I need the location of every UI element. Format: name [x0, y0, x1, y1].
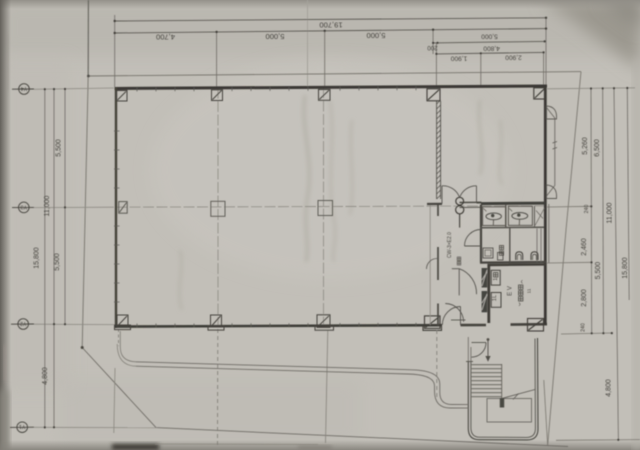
svg-text:5,260: 5,260	[582, 137, 589, 155]
svg-text:11,000: 11,000	[607, 202, 614, 223]
svg-text:2,460: 2,460	[581, 238, 588, 256]
svg-text:Y4: Y4	[21, 85, 28, 91]
svg-text:Y1: Y1	[19, 423, 26, 429]
svg-text:4,800: 4,800	[42, 367, 49, 385]
svg-text:4,800: 4,800	[606, 379, 613, 397]
svg-text:15,800: 15,800	[34, 247, 41, 269]
svg-text:5,000: 5,000	[265, 32, 284, 41]
svg-text:19,700: 19,700	[319, 21, 342, 30]
svg-text:5,500: 5,500	[56, 139, 63, 157]
svg-text:2,800: 2,800	[581, 289, 588, 307]
svg-text:4,700: 4,700	[156, 33, 175, 42]
svg-text:CW-3×E2.0: CW-3×E2.0	[447, 232, 453, 258]
svg-text:1,900: 1,900	[450, 55, 467, 62]
svg-text:11: 11	[527, 288, 532, 293]
svg-text:Y3: Y3	[21, 203, 28, 209]
svg-text:11,000: 11,000	[44, 195, 51, 216]
svg-text:240: 240	[584, 205, 590, 214]
svg-text:4,800: 4,800	[483, 44, 500, 51]
svg-text:5,500: 5,500	[595, 262, 602, 280]
svg-text:1L: 1L	[492, 295, 498, 301]
svg-text:6,500: 6,500	[594, 139, 601, 157]
svg-text:E V: E V	[508, 286, 514, 296]
svg-text:240: 240	[581, 323, 587, 332]
svg-text:1: 1	[493, 278, 499, 281]
svg-text:5,000: 5,000	[366, 31, 385, 40]
svg-text:15,800: 15,800	[622, 257, 629, 279]
svg-text:2,900: 2,900	[505, 54, 522, 61]
svg-text:Y2: Y2	[20, 320, 27, 326]
svg-text:200: 200	[427, 44, 438, 51]
svg-text:5,500: 5,500	[54, 253, 61, 271]
svg-text:5,000: 5,000	[481, 32, 498, 39]
